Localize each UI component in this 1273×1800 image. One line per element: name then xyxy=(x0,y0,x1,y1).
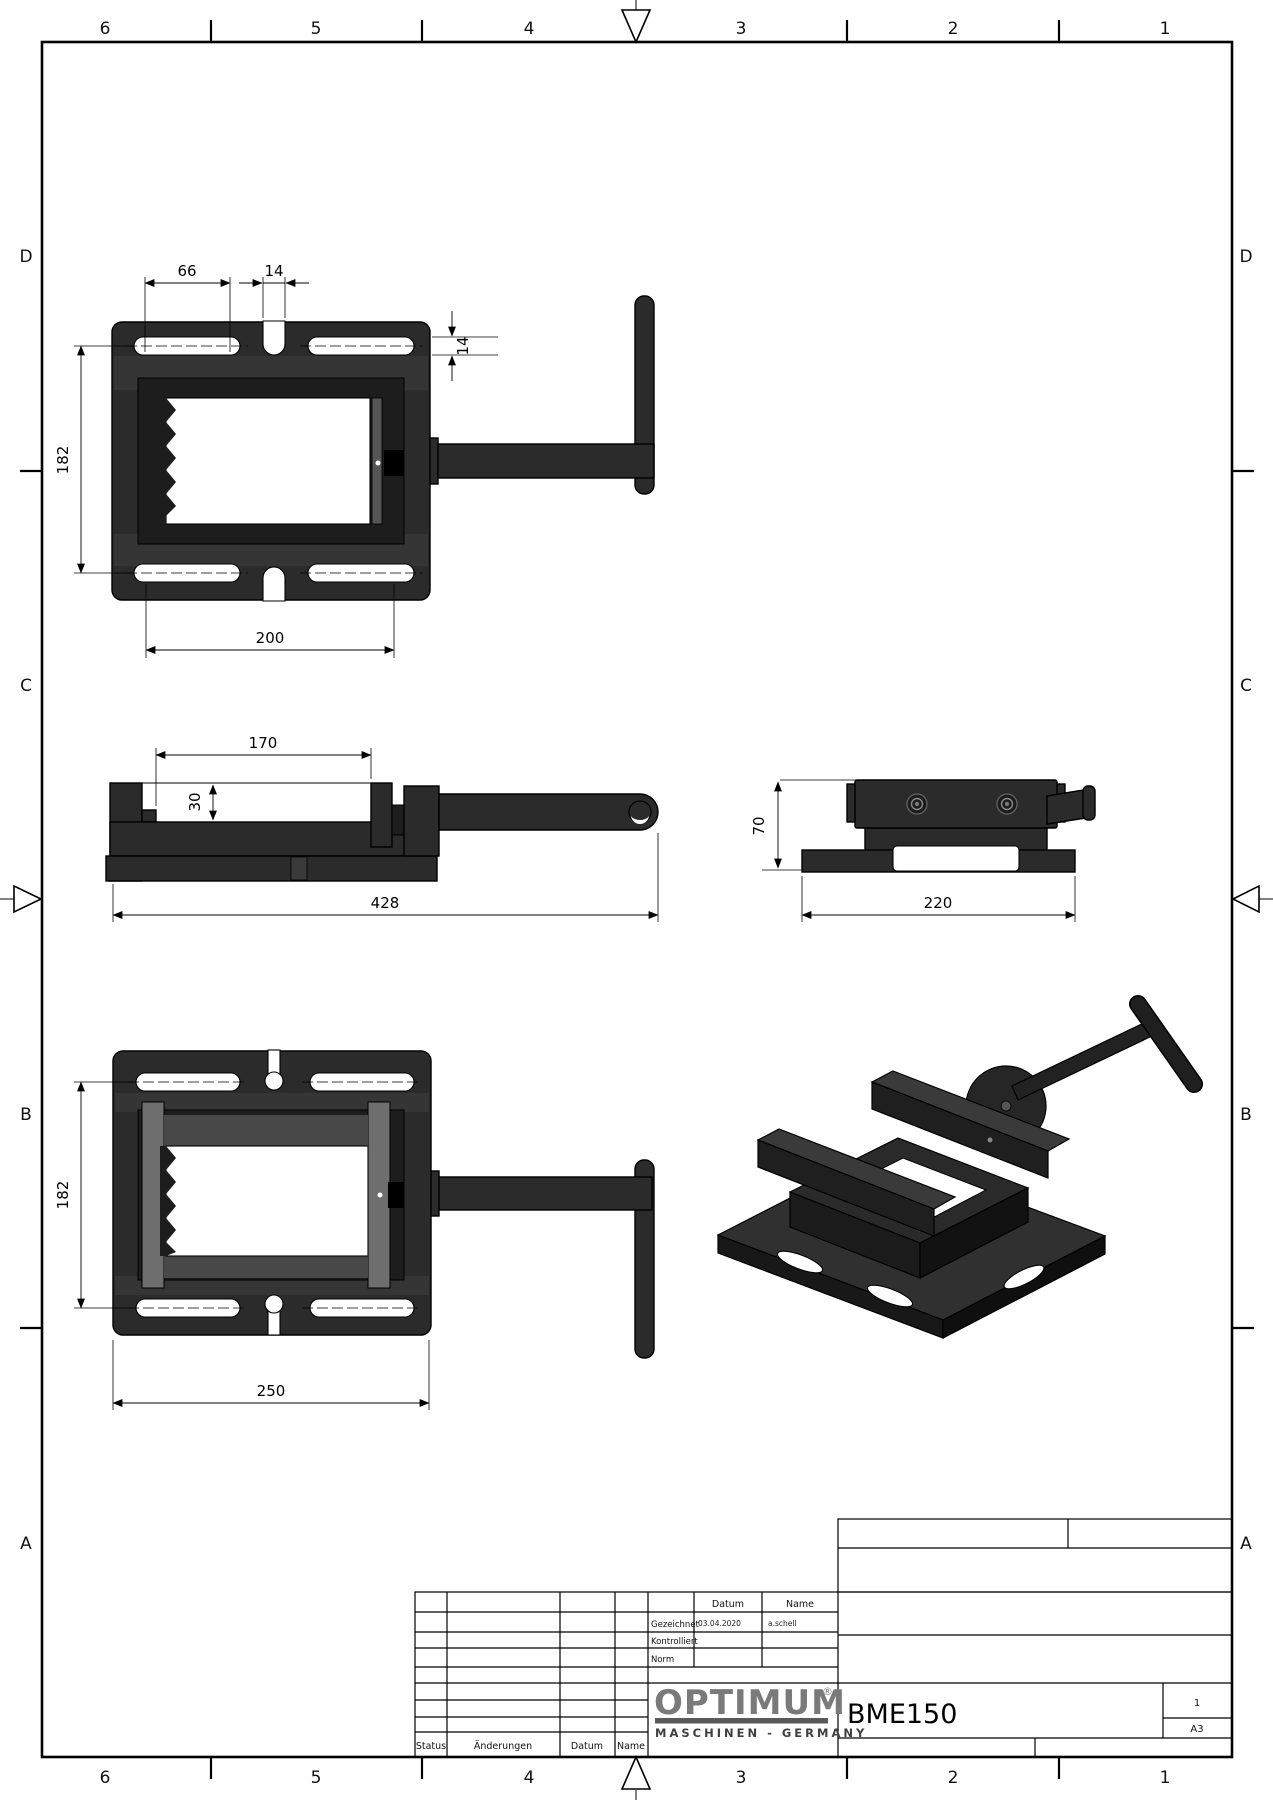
svg-text:220: 220 xyxy=(924,894,953,912)
title-block-upper-box xyxy=(838,1519,1232,1592)
top-view: 66 14 182 14 200 xyxy=(54,262,654,658)
svg-text:250: 250 xyxy=(257,1382,286,1400)
logo-brand-text: OPTIMUM xyxy=(654,1683,846,1723)
engineering-drawing: 6 5 4 3 2 1 6 5 4 3 2 1 D C B A D C B A xyxy=(0,0,1273,1800)
zone-right-C: C xyxy=(1240,676,1252,696)
zone-top-2: 2 xyxy=(948,19,959,39)
svg-text:66: 66 xyxy=(177,262,196,280)
jaw-screw xyxy=(997,794,1017,814)
svg-text:182: 182 xyxy=(54,446,72,475)
front-view: 70 220 xyxy=(750,780,1095,922)
top-center-mark xyxy=(622,0,650,42)
side-view: 170 30 428 xyxy=(106,734,658,922)
dimension-30: 30 xyxy=(186,783,232,820)
drawing-sheet: 6 5 4 3 2 1 6 5 4 3 2 1 D C B A D C B A xyxy=(0,0,1273,1800)
approval-name-value: a.schell xyxy=(768,1619,797,1628)
dimension-14-slot: 14 xyxy=(239,262,309,318)
base-side-view xyxy=(106,856,437,881)
part-number: BME150 xyxy=(847,1699,957,1730)
zone-right-A: A xyxy=(1240,1534,1252,1554)
handle-rod-bottom-view xyxy=(431,1177,652,1210)
dimension-14-depth: 14 xyxy=(432,311,498,381)
registered-trademark-icon: ® xyxy=(822,1685,833,1698)
svg-text:428: 428 xyxy=(371,894,400,912)
zone-right-B: B xyxy=(1240,1105,1252,1125)
jaw-opening-top-view xyxy=(166,398,370,524)
iso-handle-grip xyxy=(1138,1004,1194,1084)
right-center-mark xyxy=(1233,886,1273,912)
zone-left-A: A xyxy=(20,1534,32,1554)
paper-format: A3 xyxy=(1190,1724,1203,1735)
revision-date-header: Datum xyxy=(571,1741,603,1752)
zone-top-6: 6 xyxy=(100,19,111,39)
handle-rod-side-view xyxy=(439,794,658,830)
revision-status-header: Status xyxy=(416,1741,446,1752)
zone-bottom-6: 6 xyxy=(100,1768,111,1788)
dimension-70: 70 xyxy=(750,782,802,870)
svg-text:200: 200 xyxy=(256,629,285,647)
company-logo: OPTIMUM ® MASCHINEN - GERMANY xyxy=(654,1683,867,1740)
zone-bottom-1: 1 xyxy=(1160,1768,1171,1788)
jaw-opening-bottom-view xyxy=(166,1146,368,1256)
sheet-number: 1 xyxy=(1194,1698,1200,1709)
zone-bottom-5: 5 xyxy=(311,1768,322,1788)
bottom-view: 182 250 xyxy=(54,1050,654,1410)
clamp-notch xyxy=(263,321,285,355)
approval-date-value: 03.04.2020 xyxy=(698,1619,741,1628)
left-center-mark xyxy=(0,886,41,912)
jaw-plate-front-view xyxy=(855,780,1057,828)
zone-left-D: D xyxy=(19,247,32,267)
approval-datum-header: Datum xyxy=(712,1599,744,1610)
jaw-screw xyxy=(907,794,927,814)
svg-text:14: 14 xyxy=(264,262,283,280)
zone-bottom-4: 4 xyxy=(524,1768,535,1788)
svg-text:182: 182 xyxy=(54,1181,72,1210)
logo-subtitle: MASCHINEN - GERMANY xyxy=(655,1726,867,1740)
zone-left-C: C xyxy=(20,676,32,696)
zone-bottom-3: 3 xyxy=(736,1768,747,1788)
zone-left-B: B xyxy=(20,1105,32,1125)
approval-row-label: Norm xyxy=(651,1655,674,1665)
bottom-center-mark xyxy=(622,1757,650,1800)
revision-changes-header: Änderungen xyxy=(474,1741,532,1752)
dimension-250: 250 xyxy=(113,1340,429,1410)
svg-text:30: 30 xyxy=(186,792,204,811)
revision-name-header: Name xyxy=(617,1741,645,1752)
logo-divider-bar xyxy=(655,1718,828,1724)
zone-top-5: 5 xyxy=(311,19,322,39)
svg-text:70: 70 xyxy=(750,816,768,835)
movable-jaw-side-view xyxy=(371,783,392,847)
zone-top-4: 4 xyxy=(524,19,535,39)
approval-row-label: Gezeichnet xyxy=(651,1620,700,1630)
zone-top-3: 3 xyxy=(736,19,747,39)
iso-handle-rod xyxy=(1012,1021,1154,1100)
clamp-notch xyxy=(263,567,285,601)
svg-text:170: 170 xyxy=(249,734,278,752)
isometric-view xyxy=(718,1004,1194,1338)
handle-stub-front-view xyxy=(1047,790,1086,824)
dimension-220: 220 xyxy=(802,876,1075,922)
approval-name-header: Name xyxy=(786,1599,814,1610)
handle-rod-top-view xyxy=(430,444,654,478)
title-block: Datum Name Gezeichnet 03.04.2020 a.schel… xyxy=(415,1519,1232,1757)
approval-row-label: Kontrolliert xyxy=(651,1637,698,1647)
zone-right-D: D xyxy=(1239,247,1252,267)
zone-top-1: 1 xyxy=(1160,19,1171,39)
zone-bottom-2: 2 xyxy=(948,1768,959,1788)
svg-text:14: 14 xyxy=(454,336,472,355)
